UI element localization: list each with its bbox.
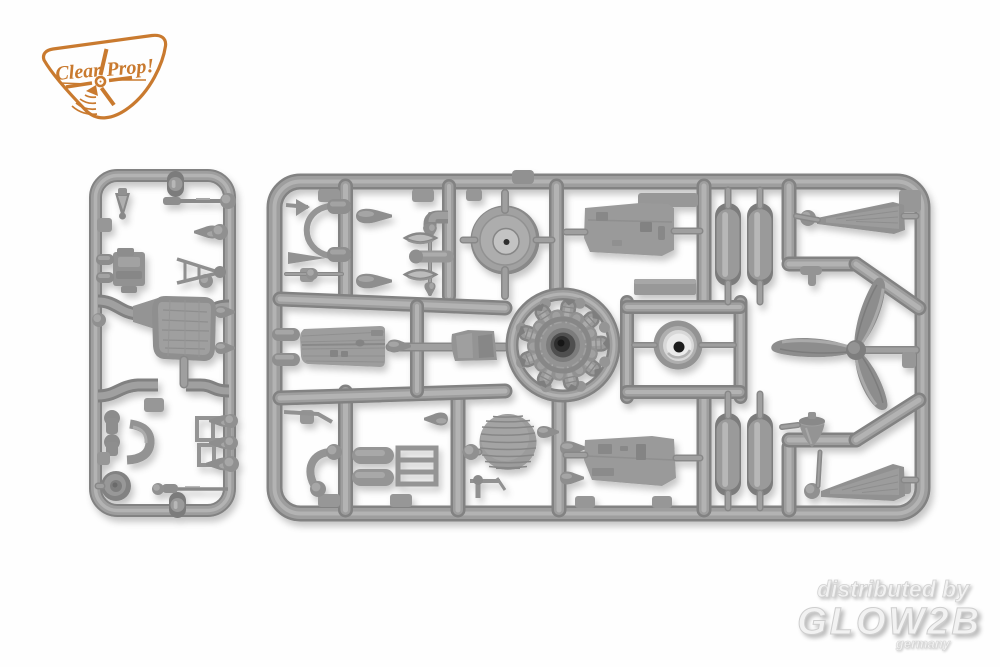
svg-text:GLOW2B: GLOW2B <box>797 601 982 643</box>
svg-text:Prop!: Prop! <box>105 55 156 81</box>
svg-text:distributed by: distributed by <box>817 576 970 602</box>
svg-text:germany: germany <box>895 636 951 651</box>
svg-text:Clear: Clear <box>55 59 103 85</box>
